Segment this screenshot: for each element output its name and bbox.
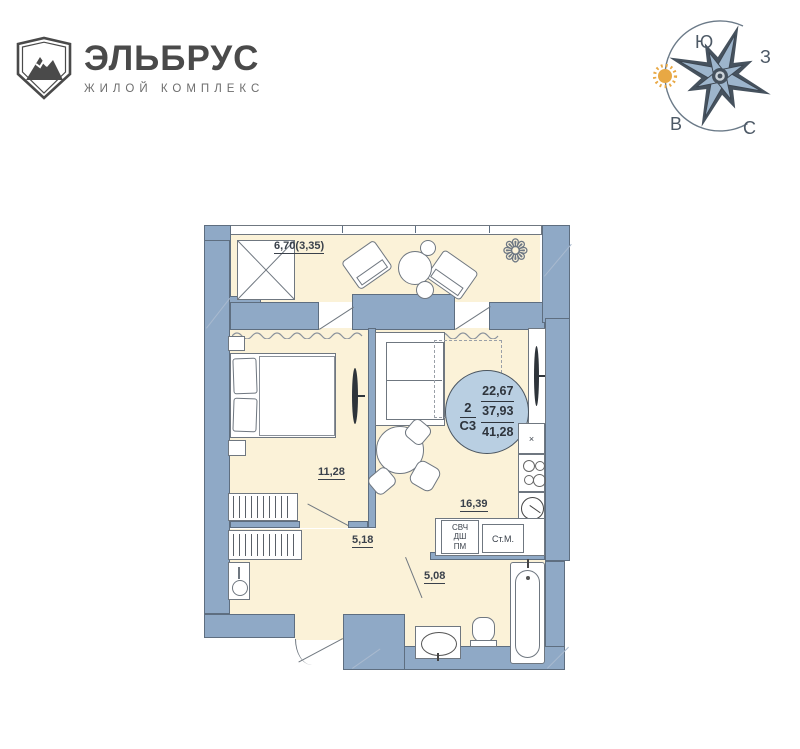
bathtub-drain xyxy=(526,576,530,580)
wardrobe-rail xyxy=(228,493,298,521)
blanket xyxy=(259,356,335,436)
burner xyxy=(535,461,545,471)
bathtub xyxy=(510,562,545,664)
balcony-stool xyxy=(420,240,436,256)
logo-title: ЭЛЬБРУС xyxy=(84,41,264,76)
bathroom-area-label: 5,08 xyxy=(424,570,445,584)
bathtub-inner xyxy=(515,570,540,658)
window-handle xyxy=(538,375,545,377)
wall-bedroom-bottom-left xyxy=(230,521,300,528)
shoe-cabinet-detail xyxy=(232,580,248,596)
balcony-dimension-label: 6,70(3,35) xyxy=(274,240,324,254)
logo-tagline: ЖИЛОЙ КОМПЛЕКС xyxy=(84,83,264,95)
pm-label: ПМ xyxy=(454,542,466,551)
badge-total-area: 41,28 xyxy=(481,423,514,442)
plant-icon: ❁ xyxy=(502,232,529,270)
shoe-cabinet xyxy=(228,562,250,600)
tv-bracket xyxy=(357,395,365,397)
pillow xyxy=(232,398,257,433)
stove xyxy=(518,454,545,492)
wall-balcony-right xyxy=(489,302,545,330)
floor-plan: ❁ 6,70(3,35) 11,28 2 С3 22,67 37,93 41,2… xyxy=(202,218,570,673)
cabinet-x-mark: × xyxy=(529,434,534,444)
curtain-wave xyxy=(232,329,366,339)
shoe-cabinet-detail xyxy=(238,567,240,579)
wall-bedroom-bottom-right xyxy=(348,521,368,528)
sun-icon xyxy=(658,69,672,83)
compass-label-north: С xyxy=(743,118,756,138)
badge-floor-area: 37,93 xyxy=(481,402,514,422)
wall-right xyxy=(545,318,570,561)
wall-balcony-left xyxy=(230,302,319,330)
mountain-shield-icon xyxy=(16,36,72,100)
apartment-badge: 2 С3 22,67 37,93 41,28 xyxy=(445,370,529,454)
burner xyxy=(533,474,546,487)
kitchen-living-area-label: 16,39 xyxy=(460,498,488,512)
wall-balcony-pier xyxy=(352,294,455,330)
washbasin xyxy=(421,632,457,656)
microwave-label: СВЧ xyxy=(452,523,468,532)
burner xyxy=(523,460,535,472)
washing-machine-box: Ст.М. xyxy=(482,524,524,553)
compass-rose: Ю З В С xyxy=(640,6,790,141)
hangers xyxy=(233,496,293,518)
washbasin-tap xyxy=(437,653,439,661)
badge-layout: С3 xyxy=(460,418,477,434)
wall-entry-pillar xyxy=(343,614,405,670)
compass-label-east: В xyxy=(670,114,682,134)
balcony-table xyxy=(398,251,432,285)
balcony-door-swing xyxy=(455,306,491,330)
kitchen-cabinet: × xyxy=(518,423,545,454)
balcony-glazing xyxy=(230,225,542,235)
toilet-tank xyxy=(470,640,497,647)
wardrobe-rail xyxy=(228,530,302,560)
badge-rooms: 2 xyxy=(460,400,477,417)
dishwasher-label: ДШ xyxy=(454,532,467,541)
pillow xyxy=(232,358,257,395)
glazing-tick xyxy=(489,226,490,233)
glazing-tick xyxy=(415,226,416,233)
wall-left xyxy=(204,240,230,614)
wall-bottom-left xyxy=(204,614,295,638)
compass-label-west: З xyxy=(760,47,771,67)
washbasin-vanity xyxy=(415,626,461,659)
hallway-area-label: 5,18 xyxy=(352,534,373,548)
compass-label-south: Ю xyxy=(695,32,713,52)
appliance-stack-box: СВЧ ДШ ПМ xyxy=(441,520,479,554)
double-bed xyxy=(230,353,336,438)
entry-floor xyxy=(295,614,343,640)
bathtub-tap xyxy=(527,559,529,568)
glazing-tick xyxy=(342,226,343,233)
hangers xyxy=(233,534,297,556)
bedroom-area-label: 11,28 xyxy=(318,466,345,480)
balcony-stool xyxy=(416,281,434,299)
developer-logo: ЭЛЬБРУС ЖИЛОЙ КОМПЛЕКС xyxy=(16,36,264,100)
balcony-door-swing xyxy=(319,307,354,330)
washing-machine-label: Ст.М. xyxy=(492,534,514,544)
nightstand xyxy=(228,440,246,456)
badge-living-area: 22,67 xyxy=(481,382,514,402)
nightstand xyxy=(228,336,245,351)
wall-right-bath xyxy=(545,561,565,656)
